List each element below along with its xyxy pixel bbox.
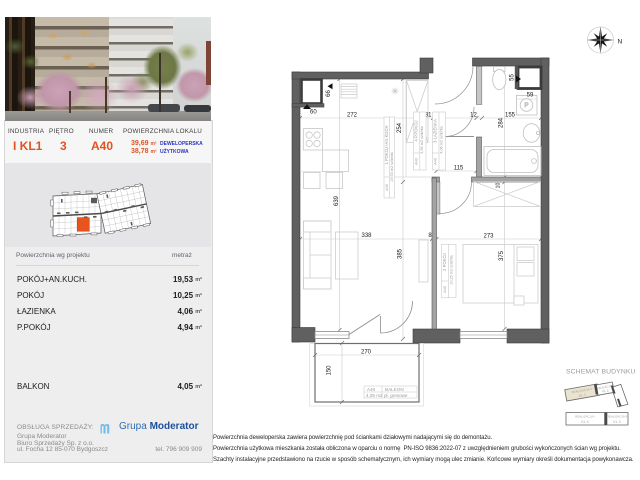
svg-text:55: 55 [510,74,516,81]
svg-text:150: 150 [327,365,333,376]
svg-text:59: 59 [527,93,534,99]
svg-text:2 POKÓJ: 2 POKÓJ [442,253,447,271]
svg-text:REALIZACJA I: REALIZACJA I [575,415,595,419]
svg-text:4,05 m2: 4,05 m2 [366,393,383,398]
svg-text:pł. gresowe: pł. gresowe [384,393,408,398]
svg-text:4,94 m2 szlichta: 4,94 m2 szlichta [420,125,424,153]
svg-text:272: 272 [347,113,358,119]
svg-text:284: 284 [499,117,505,128]
svg-text:19,53 m2 szlichta: 19,53 m2 szlichta [390,151,394,181]
svg-text:A40: A40 [434,158,438,165]
svg-text:10,25 m2 szlichta: 10,25 m2 szlichta [450,254,454,284]
svg-text:SCHEMAT BUDYNKU: SCHEMAT BUDYNKU [566,369,636,376]
svg-text:385: 385 [398,248,404,259]
svg-text:N: N [618,39,623,46]
svg-text:P: P [524,103,528,109]
svg-text:10: 10 [496,183,502,189]
svg-text:66: 66 [326,90,332,97]
svg-text:REALIZACJA II: REALIZACJA II [607,415,628,419]
svg-text:KL 4: KL 4 [581,420,588,424]
svg-text:A40: A40 [415,158,419,165]
svg-text:1 POKÓJ+AN.KUCH: 1 POKÓJ+AN.KUCH [384,126,389,165]
svg-text:BALKON: BALKON [385,387,404,392]
svg-text:60: 60 [310,110,317,116]
svg-text:A40: A40 [367,387,376,392]
svg-text:12: 12 [470,113,477,119]
svg-text:KL 3: KL 3 [613,420,620,424]
svg-text:4,06 m2 szlichta: 4,06 m2 szlichta [439,125,443,153]
svg-text:270: 270 [361,350,372,356]
svg-text:639: 639 [334,195,340,206]
svg-text:4 P.POKÓJ: 4 P.POKÓJ [414,120,419,141]
svg-text:A40: A40 [443,286,447,293]
svg-text:338: 338 [361,233,372,239]
svg-text:3 ŁAZIENKA: 3 ŁAZIENKA [433,119,438,143]
svg-text:254: 254 [397,122,403,133]
svg-text:273: 273 [483,234,494,240]
svg-text:155: 155 [505,113,516,119]
svg-text:115: 115 [454,166,464,172]
svg-text:A40: A40 [385,184,389,191]
svg-text:375: 375 [499,250,505,261]
